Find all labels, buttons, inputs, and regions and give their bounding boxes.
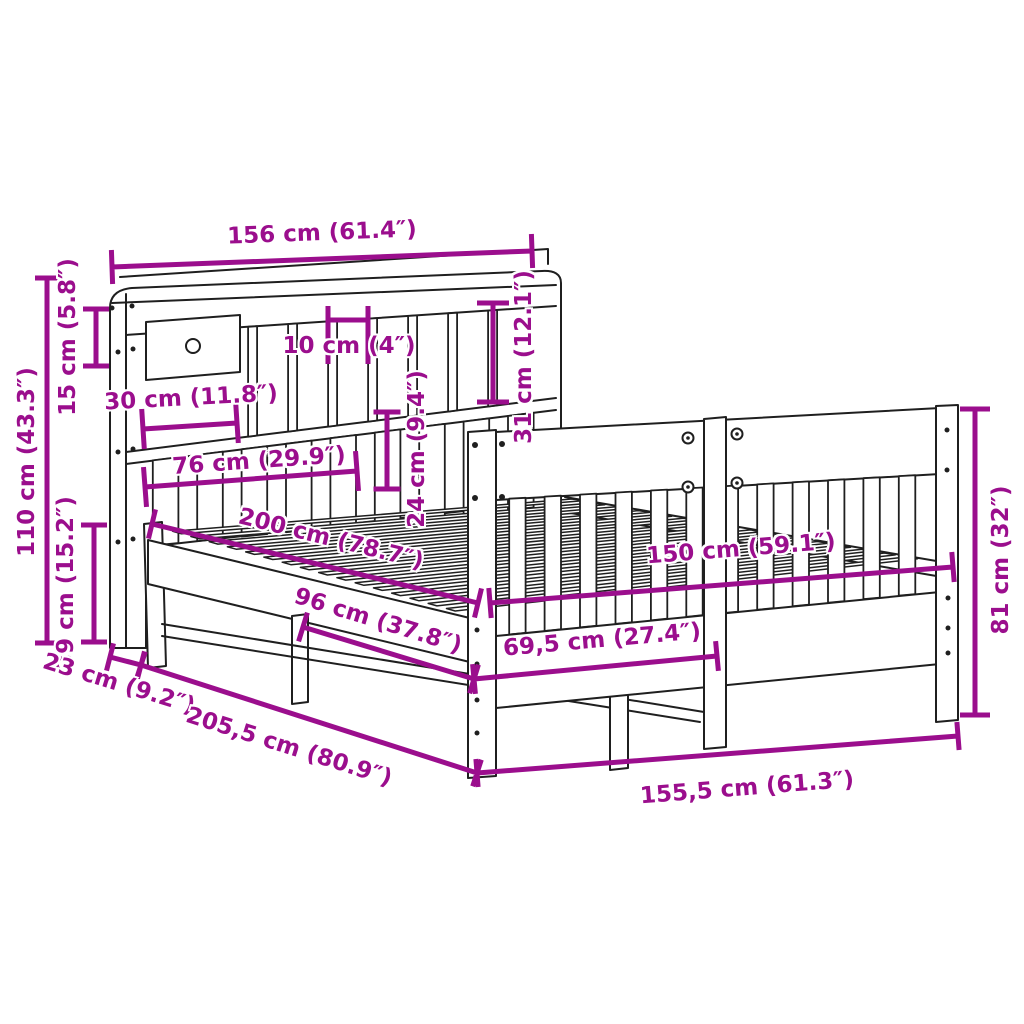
- center-support-leg: [610, 692, 628, 770]
- dim-lower-section-height-label: 39 cm (15.2″): [53, 496, 79, 670]
- dimension-diagram: 156 cm (61.4″) 110 cm (43.3″) 15 cm (5.8…: [0, 0, 1024, 1024]
- dim-slat-height-label: 24 cm (9.4″): [404, 370, 430, 528]
- dim-shelf-opening-height-label: 31 cm (12.1″): [511, 270, 537, 444]
- bed-line-drawing: [0, 0, 1024, 1024]
- dim-footboard-height-label: 81 cm (32″): [988, 486, 1014, 635]
- headboard-drawer: [146, 315, 240, 380]
- dim-top-shelf-height-label: 15 cm (5.8″): [55, 258, 81, 416]
- dim-total-height-label: 110 cm (43.3″): [14, 367, 40, 557]
- dim-compartment-width-label: 10 cm (4″): [283, 333, 416, 359]
